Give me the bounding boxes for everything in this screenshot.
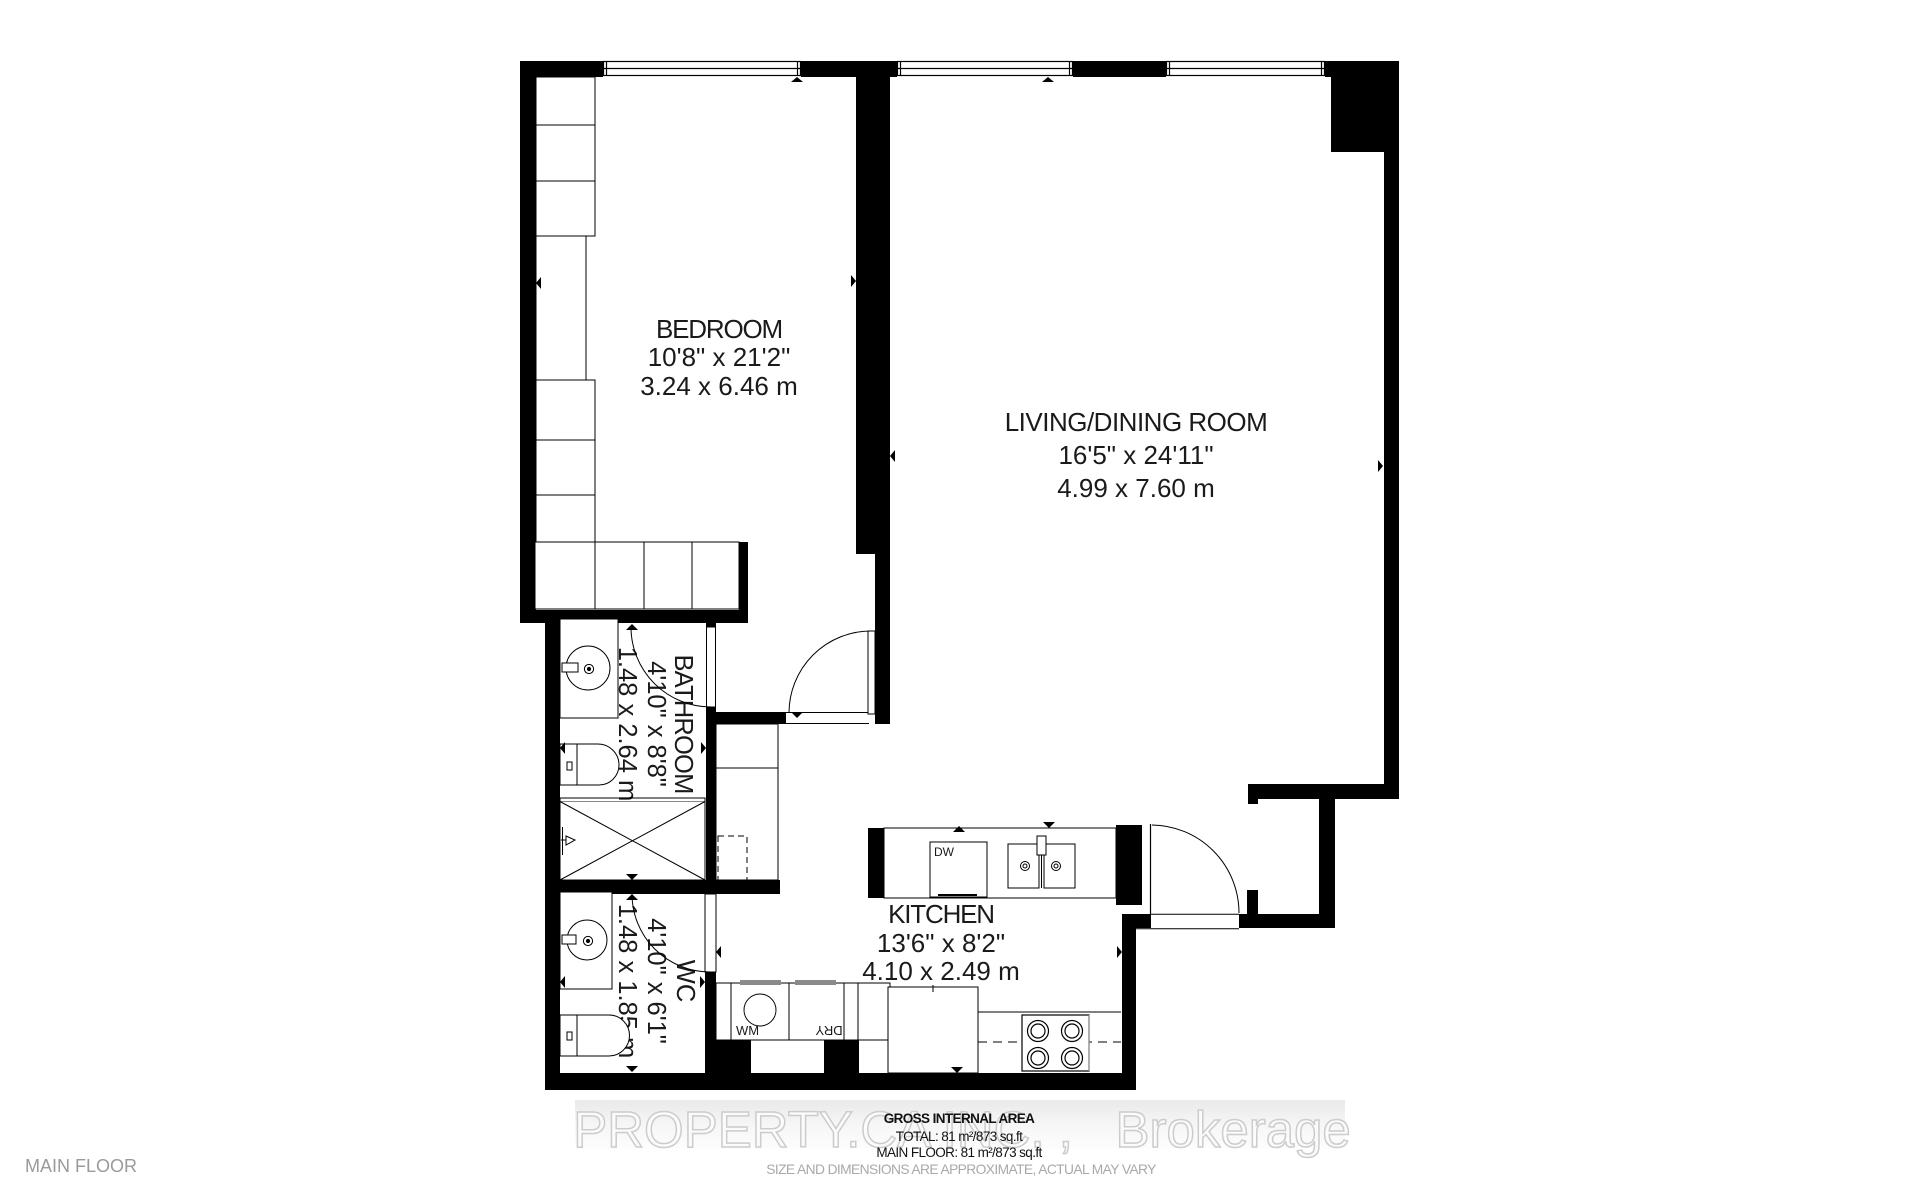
svg-text:GROSS INTERNAL AREA: GROSS INTERNAL AREA: [884, 1111, 1035, 1126]
svg-text:TOTAL: 81 m²/873 sq.ft: TOTAL: 81 m²/873 sq.ft: [896, 1129, 1023, 1144]
svg-text:KITCHEN: KITCHEN: [888, 899, 994, 929]
svg-text:WM: WM: [736, 1023, 759, 1038]
svg-text:4'10" x 8'8": 4'10" x 8'8": [642, 661, 670, 787]
svg-text:4'10" x 6'1": 4'10" x 6'1": [642, 918, 670, 1044]
svg-text:MAIN FLOOR: 81 m²/873 sq.ft: MAIN FLOOR: 81 m²/873 sq.ft: [876, 1145, 1042, 1160]
svg-text:SIZE AND DIMENSIONS ARE APPROX: SIZE AND DIMENSIONS ARE APPROXIMATE, ACT…: [766, 1162, 1156, 1177]
svg-text:10'8" x 21'2": 10'8" x 21'2": [648, 342, 791, 372]
svg-text:DRY: DRY: [815, 1023, 843, 1038]
svg-text:WC: WC: [671, 960, 699, 1002]
svg-text:BEDROOM: BEDROOM: [656, 314, 782, 344]
svg-text:3.24 x 6.46 m: 3.24 x 6.46 m: [640, 371, 798, 401]
svg-text:DW: DW: [934, 845, 955, 859]
svg-text:LIVING/DINING ROOM: LIVING/DINING ROOM: [1005, 407, 1268, 437]
svg-text:4.99 x 7.60 m: 4.99 x 7.60 m: [1057, 473, 1215, 503]
svg-text:4.10 x 2.49 m: 4.10 x 2.49 m: [862, 956, 1020, 986]
svg-text:16'5" x 24'11": 16'5" x 24'11": [1058, 440, 1213, 470]
svg-text:MAIN FLOOR: MAIN FLOOR: [25, 1156, 137, 1176]
svg-text:13'6" x 8'2": 13'6" x 8'2": [877, 928, 1005, 958]
svg-text:BATHROOM: BATHROOM: [669, 654, 697, 793]
